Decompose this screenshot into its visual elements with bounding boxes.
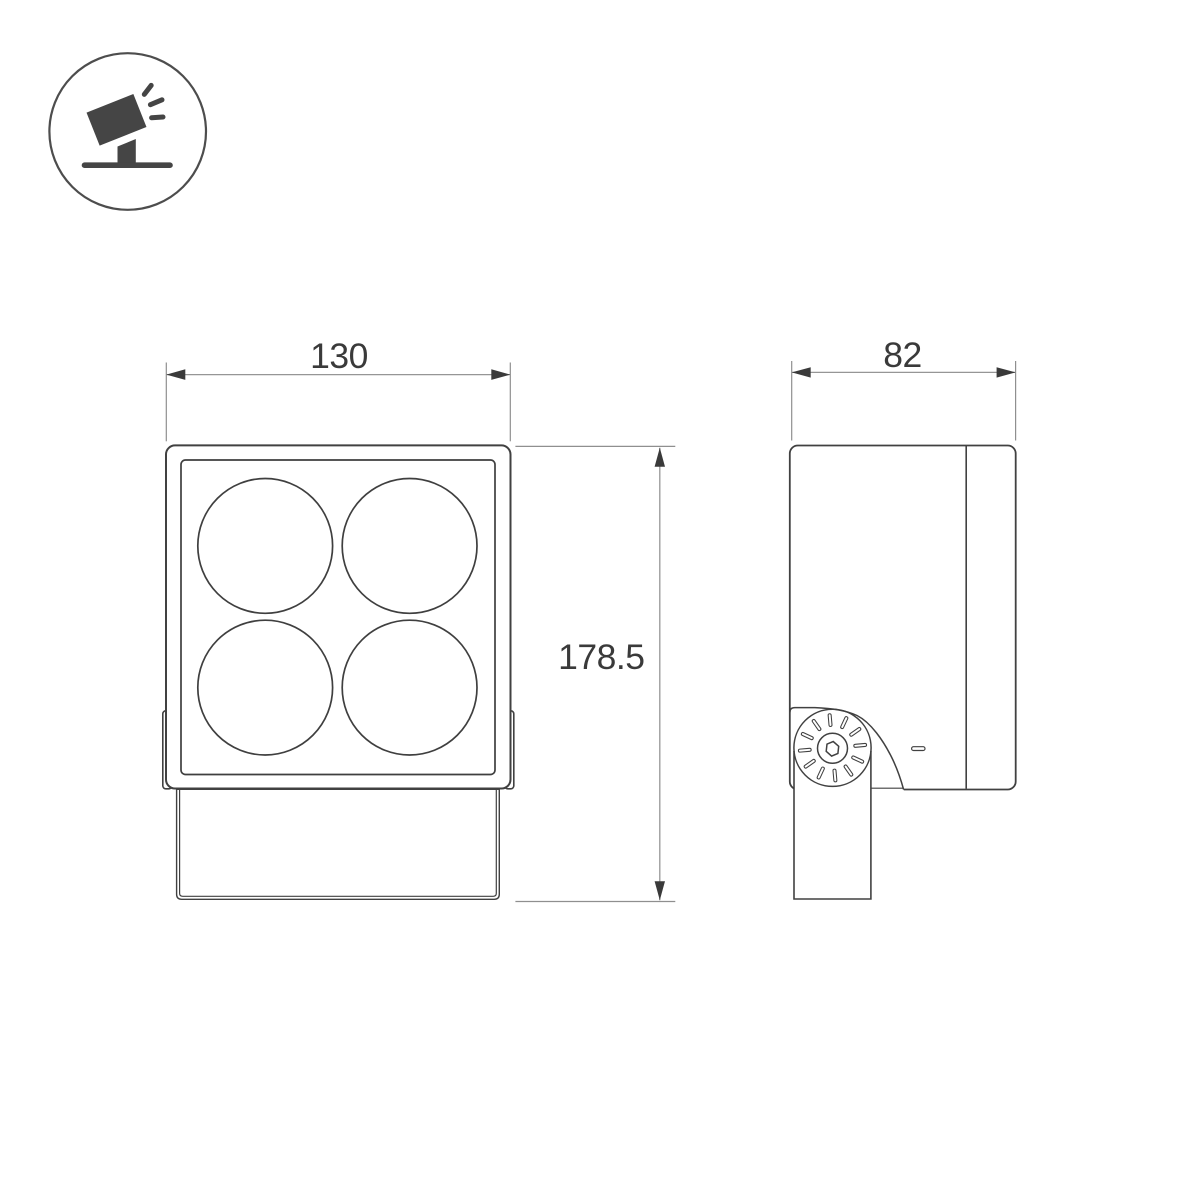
svg-text:82: 82 (883, 335, 922, 375)
svg-text:178.5: 178.5 (558, 637, 644, 677)
svg-text:130: 130 (310, 336, 368, 376)
